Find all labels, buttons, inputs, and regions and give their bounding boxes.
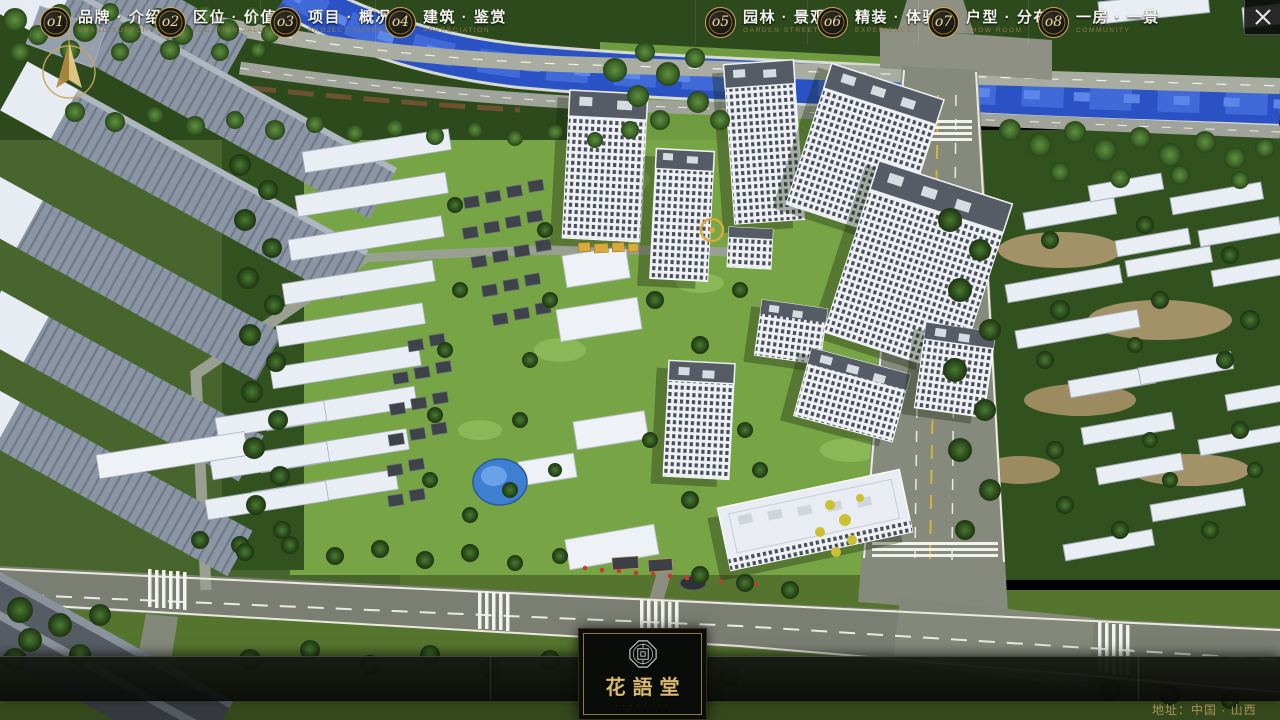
nav-item-02-location[interactable]: o2区位 · 价值LOCATION VALUE: [145, 0, 260, 44]
pond: [473, 459, 527, 505]
close-button[interactable]: [1244, 0, 1280, 35]
project-name-caption: · · · · · · · ·: [616, 703, 669, 709]
nav-divider: [490, 656, 491, 700]
nav-number-badge: o7: [928, 7, 959, 38]
nav-label: 一房 · 一景: [1076, 10, 1160, 25]
nav-number-badge: o1: [40, 7, 71, 38]
nav-number-badge: o2: [155, 7, 186, 38]
nav-item-08-views[interactable]: o8一房 · 一景COMMUNITY: [1028, 0, 1138, 44]
aerial-site-plan: [0, 0, 1280, 720]
nav-number-badge: o8: [1038, 7, 1069, 38]
nav-caption: COMMUNITY: [1076, 28, 1160, 35]
nav-number-badge: o5: [705, 7, 736, 38]
project-logo-panel[interactable]: 花語堂 · · · · · · · ·: [578, 628, 707, 720]
nav-number-badge: o4: [385, 7, 416, 38]
sales-presentation-window: o1品牌 · 介绍BRAND SUPPORT o2区位 · 价值LOCATION…: [0, 0, 1280, 720]
nav-divider: [1138, 656, 1139, 700]
nav-item-07-floorplan[interactable]: o7户型 · 分布SHOW ROOM: [918, 0, 1028, 44]
nav-number-badge: o6: [817, 7, 848, 38]
close-icon: [1254, 8, 1272, 26]
nav-label: 建筑 · 鉴赏: [423, 10, 507, 25]
nav-item-01-brand[interactable]: o1品牌 · 介绍BRAND SUPPORT: [30, 0, 145, 44]
nav-caption: APPRECIATION: [423, 28, 507, 35]
nav-item-06-interior[interactable]: o6精装 · 体验EXPERIENCE: [807, 0, 918, 44]
nav-number-badge: o3: [270, 7, 301, 38]
project-address: 地址：中国 · 山西: [1152, 701, 1257, 718]
nav-item-03-project[interactable]: o3项目 · 概况PROJECT SURVEY: [260, 0, 375, 44]
nav-item-04-architecture[interactable]: o4建筑 · 鉴赏APPRECIATION: [375, 0, 490, 44]
seal-emblem-icon: [629, 640, 657, 668]
nav-item-05-garden[interactable]: o5园林 · 景观GARDEN STREET: [695, 0, 807, 44]
project-name: 花語堂: [599, 671, 687, 700]
